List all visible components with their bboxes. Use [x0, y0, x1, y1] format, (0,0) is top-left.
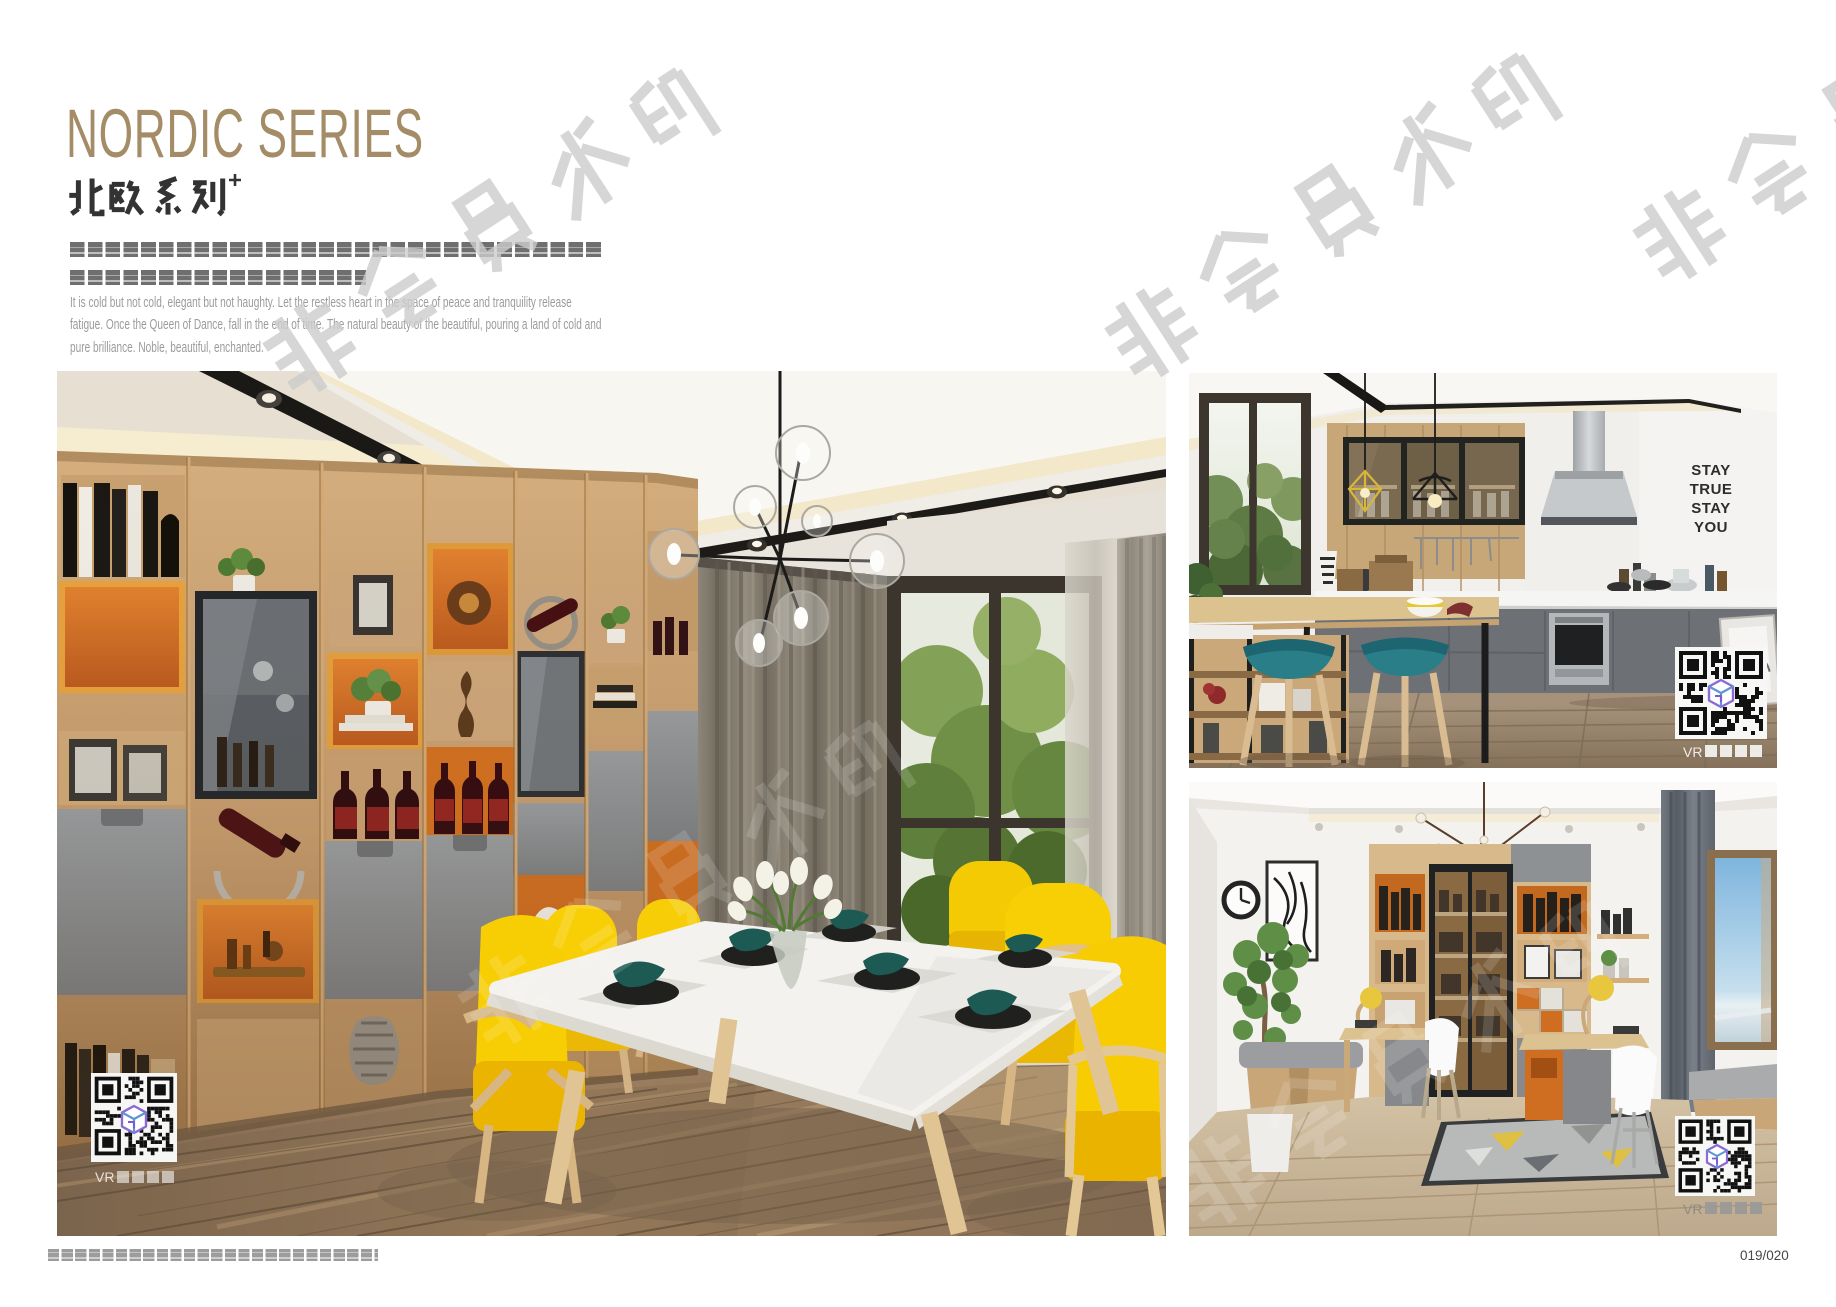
svg-text:YOU: YOU [1694, 519, 1728, 536]
svg-text:STAY: STAY [1691, 462, 1731, 479]
svg-text:VR: VR [1683, 744, 1702, 760]
svg-text:VR: VR [95, 1169, 114, 1185]
svg-text:TRUE: TRUE [1690, 481, 1733, 498]
svg-text:STAY: STAY [1691, 500, 1731, 517]
svg-text:VR: VR [1683, 1201, 1702, 1217]
